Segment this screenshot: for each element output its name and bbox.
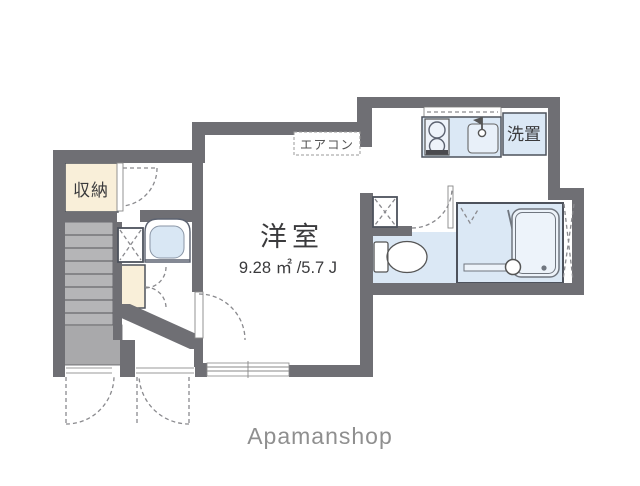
wall-segment: [360, 193, 373, 377]
wall-segment: [357, 97, 560, 108]
floor-plan-drawing: 収納 エアコン 洗置 洋室 9.28 ㎡ /5.7 J Apamanshop: [0, 0, 640, 486]
storage-label: 収納: [73, 181, 109, 200]
shoe-cabinet: [118, 265, 145, 308]
toilet: [374, 242, 427, 273]
wall-segment: [53, 150, 65, 377]
stove-base: [426, 150, 448, 155]
kitchen-sink: [468, 124, 498, 153]
room-label: 洋室: [260, 222, 324, 252]
wall-segment: [55, 212, 117, 222]
pipe-space-top: [373, 197, 397, 227]
toilet-door-arc: [412, 188, 452, 228]
wall-segment: [192, 163, 203, 292]
bath-drain: [506, 260, 521, 275]
hallway-fixtures: [118, 219, 190, 262]
wall-segment: [548, 97, 560, 191]
wall-segment: [289, 365, 373, 377]
room-door-leaf: [195, 292, 203, 338]
entrance-door-left-arc: [66, 376, 114, 424]
storage-door-leaf: [117, 163, 123, 211]
cabinet-door-arcs: [145, 267, 166, 307]
aircon-label: エアコン: [300, 138, 354, 152]
floor-plan: 収納 エアコン 洗置 洋室 9.28 ㎡ /5.7 J Apamanshop: [0, 0, 640, 486]
room-door-arc: [199, 294, 245, 340]
room-area-label: 9.28 ㎡ /5.7 J: [239, 258, 337, 277]
wall-segment: [53, 150, 205, 163]
storage-door-arc: [123, 168, 157, 206]
watermark: Apamanshop: [247, 423, 393, 449]
entrance-door-right-arc: [137, 376, 189, 424]
wall-segment: [120, 340, 135, 377]
washbasin: [145, 219, 190, 262]
kitchen-stove: [425, 119, 449, 155]
washer-label: 洗置: [507, 125, 541, 144]
pipe-space-hall: [118, 228, 143, 262]
wall-segment: [361, 283, 584, 295]
bath-step: [464, 264, 507, 271]
